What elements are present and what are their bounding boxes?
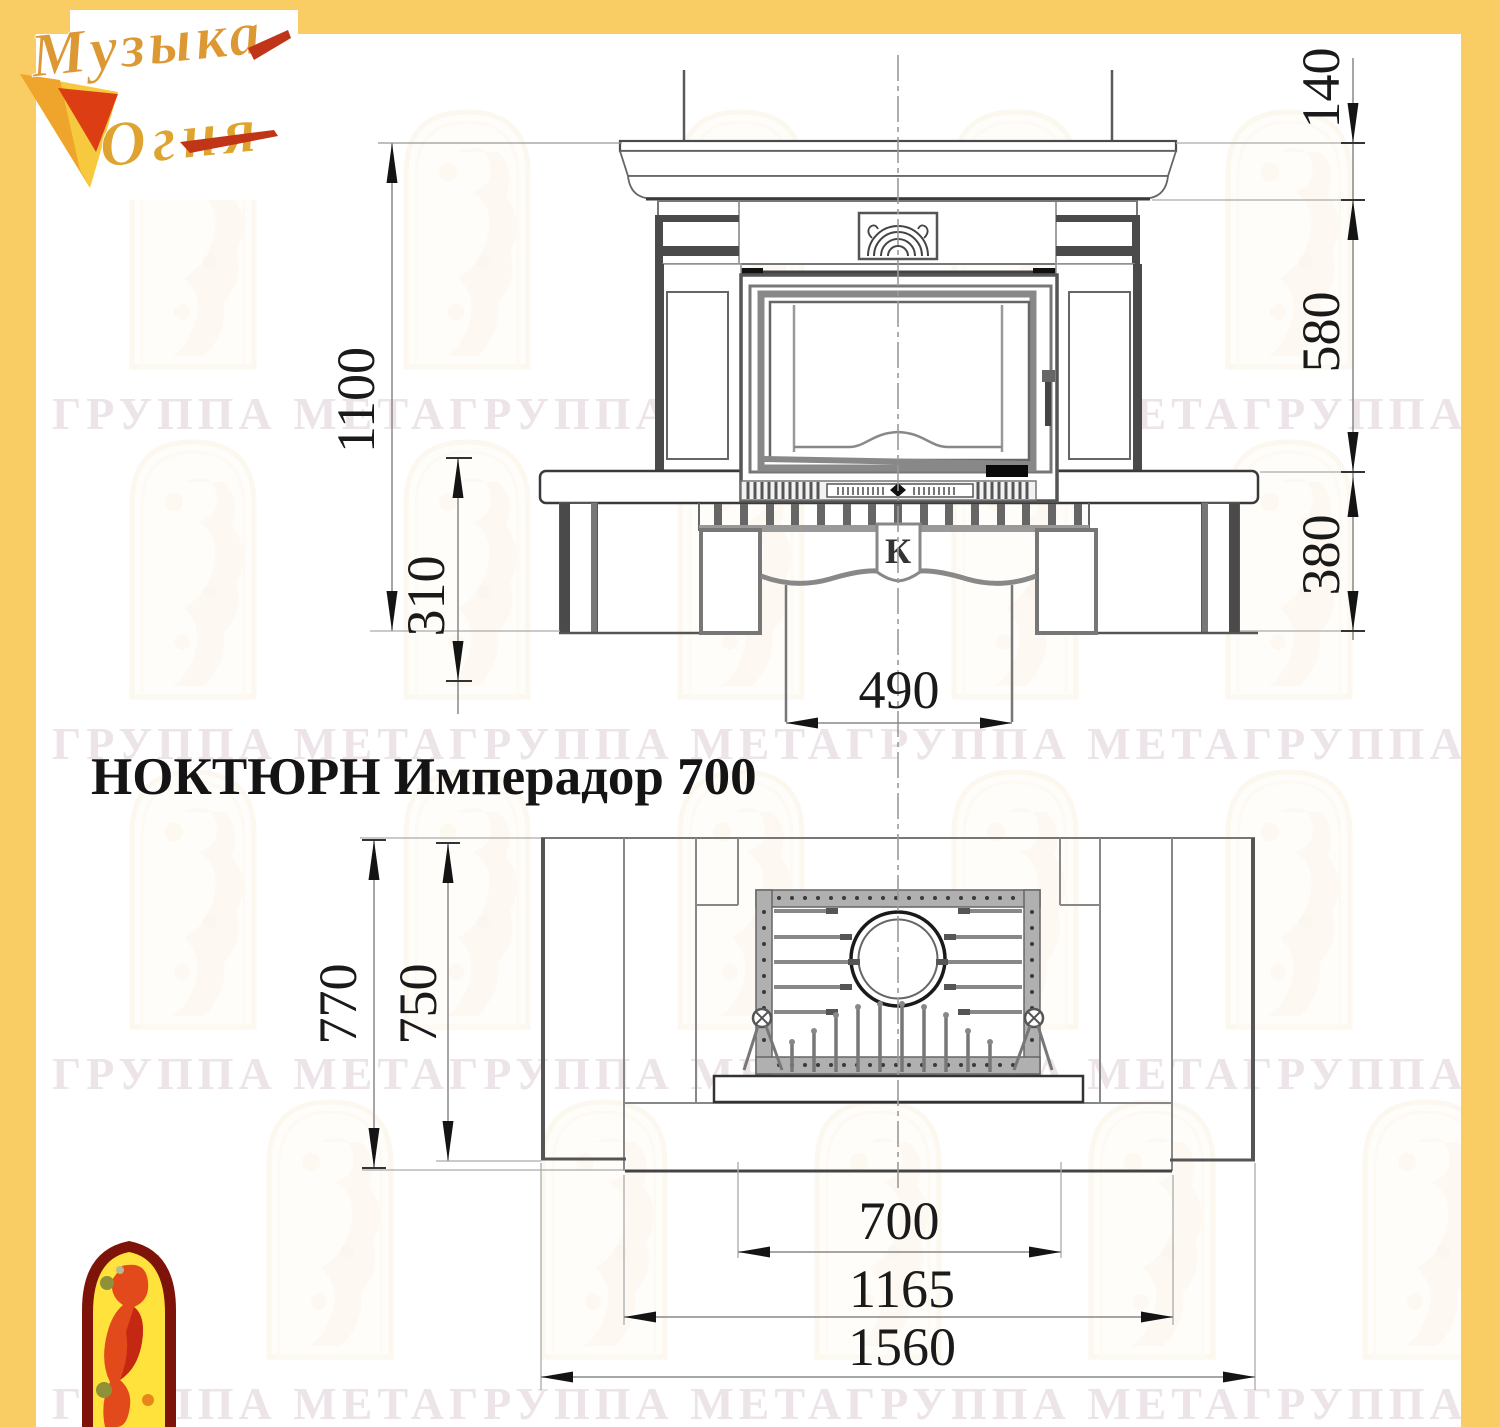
svg-text:310: 310 — [396, 556, 456, 637]
svg-text:380: 380 — [1291, 515, 1351, 596]
svg-text:ГРУППА МЕТАГРУППА МЕТАГРУППА М: ГРУППА МЕТАГРУППА МЕТАГРУППА МЕТАГРУППА … — [52, 1378, 1500, 1427]
svg-text:НОКТЮРН Имперадор 700: НОКТЮРН Имперадор 700 — [91, 748, 757, 806]
svg-text:1165: 1165 — [849, 1259, 955, 1319]
svg-text:770: 770 — [308, 964, 368, 1045]
svg-text:580: 580 — [1291, 292, 1351, 373]
svg-text:140: 140 — [1291, 48, 1351, 129]
svg-text:1100: 1100 — [326, 347, 386, 453]
svg-text:490: 490 — [859, 660, 940, 720]
svg-text:1560: 1560 — [848, 1317, 956, 1377]
svg-text:750: 750 — [388, 964, 448, 1045]
svg-text:700: 700 — [859, 1191, 940, 1251]
